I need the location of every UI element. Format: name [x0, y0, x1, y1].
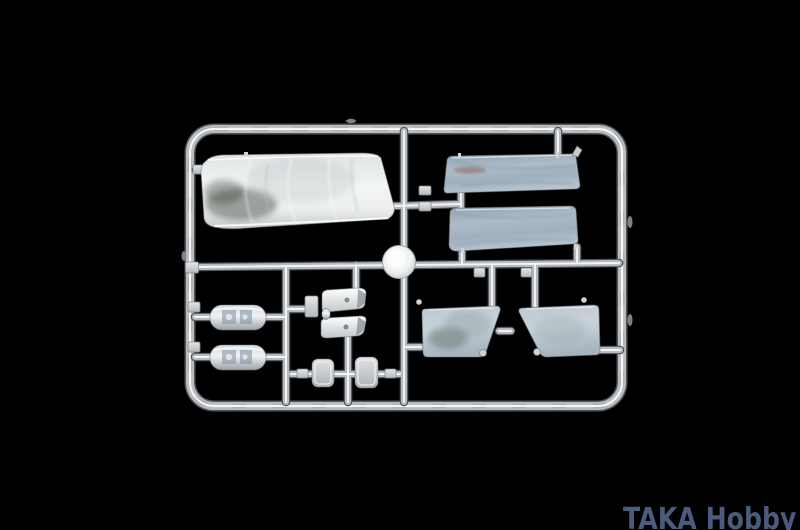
part-number-tag	[188, 342, 200, 352]
lens-bubble	[242, 314, 247, 319]
glass-block-right-part	[355, 357, 378, 388]
windshield-pin	[244, 152, 248, 156]
lens-strip-bottom-part	[210, 345, 266, 370]
part-number-tag	[521, 268, 532, 277]
part-number-tag	[385, 369, 396, 378]
gate-nub	[346, 119, 356, 123]
part-number-tag	[419, 202, 431, 211]
gate-nub	[628, 314, 633, 326]
visor-dimple	[345, 298, 350, 303]
center-boss-shine	[387, 249, 405, 267]
side-window-smudge	[534, 316, 586, 344]
gate-nub	[182, 251, 187, 261]
upper-pane-red-smudge	[454, 167, 486, 174]
visor-dimple	[344, 325, 349, 330]
lower-pane-pin	[461, 248, 464, 253]
part-number-tag	[474, 268, 485, 277]
part-number-tag	[297, 369, 308, 378]
gate-nub	[628, 216, 633, 228]
center-boss	[383, 246, 416, 279]
lens-strip-top-part	[210, 305, 266, 330]
side-window-left-part	[416, 299, 500, 357]
upper-pane-pin	[458, 153, 461, 158]
lower-pane-pin	[574, 244, 577, 249]
side-window-smudge	[444, 311, 492, 337]
windshield-dark-reflection	[204, 180, 244, 204]
photo-canvas: TAKA Hobby	[0, 0, 800, 530]
watermark-text: TAKA Hobby	[623, 502, 796, 530]
lens-bubble	[226, 354, 232, 360]
part-number-tag	[419, 186, 431, 195]
side-window-knob	[534, 349, 541, 356]
part-number-tag	[305, 296, 318, 317]
side-window-pin	[581, 297, 587, 303]
upper-pane-glass	[444, 154, 580, 193]
lens-bubble	[226, 314, 232, 320]
glass-block-left-part	[312, 359, 334, 387]
lower-window-pane-part	[449, 206, 578, 253]
visor-knob	[322, 309, 330, 320]
side-window-pin	[416, 299, 422, 305]
part-number-tag	[188, 302, 200, 312]
windshield-grey-sheen	[245, 158, 355, 202]
lens-bubble	[242, 354, 247, 359]
part-number-tag	[186, 262, 199, 273]
sprue-photo	[0, 0, 800, 530]
upper-pane-fin	[572, 146, 582, 157]
lower-pane-glass	[449, 206, 578, 251]
windshield-part	[201, 152, 394, 229]
visor-upper-part	[322, 288, 366, 312]
side-window-knob	[480, 350, 487, 357]
upper-pane-pin	[556, 152, 559, 158]
